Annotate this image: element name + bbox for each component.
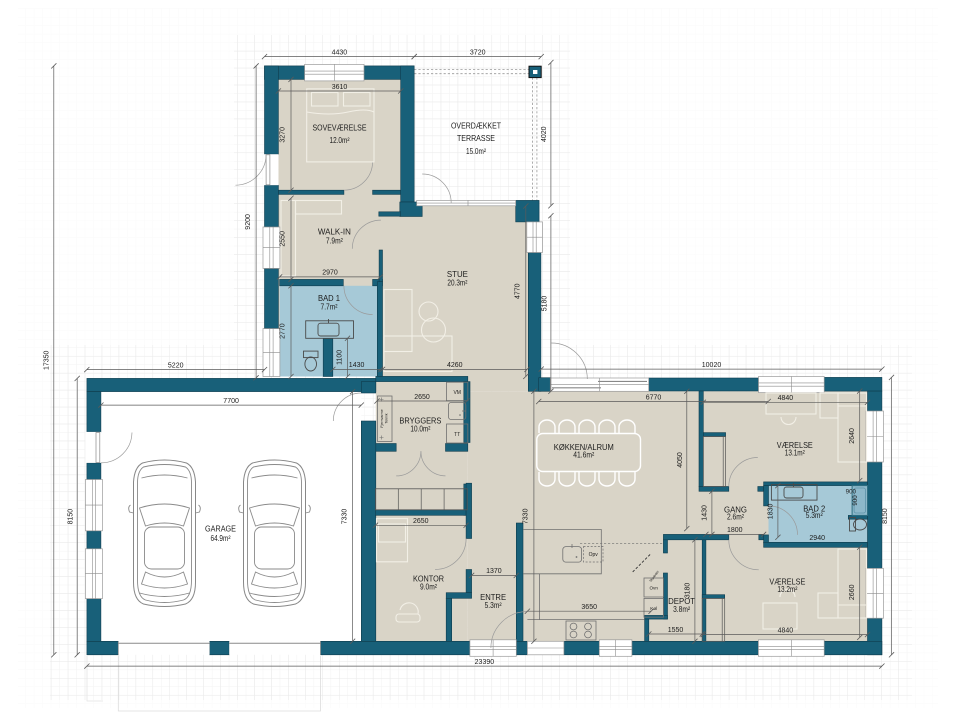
- svg-text:3270: 3270: [280, 127, 287, 143]
- svg-text:Opv: Opv: [589, 552, 599, 558]
- svg-text:4770: 4770: [515, 283, 522, 299]
- svg-text:15.0m²: 15.0m²: [466, 146, 486, 156]
- svg-text:1370: 1370: [486, 568, 502, 575]
- svg-text:2550: 2550: [280, 231, 287, 247]
- svg-text:7.7m²: 7.7m²: [321, 302, 338, 312]
- svg-text:VM: VM: [453, 390, 461, 396]
- svg-text:13.2m²: 13.2m²: [777, 584, 797, 594]
- svg-text:4050: 4050: [677, 452, 684, 468]
- svg-text:9.0m²: 9.0m²: [420, 582, 437, 592]
- svg-text:4430: 4430: [332, 49, 348, 56]
- svg-text:41.6m²: 41.6m²: [573, 450, 594, 460]
- svg-text:900: 900: [852, 495, 859, 506]
- svg-text:23390: 23390: [475, 659, 495, 666]
- svg-text:Fjernvarme: Fjernvarme: [380, 409, 384, 427]
- svg-text:8150: 8150: [882, 508, 889, 524]
- svg-text:9200: 9200: [245, 214, 252, 230]
- svg-text:12.0m²: 12.0m²: [330, 135, 350, 145]
- svg-text:Ovn: Ovn: [649, 586, 658, 591]
- svg-text:OVERDÆKKET: OVERDÆKKET: [451, 121, 501, 131]
- svg-text:1830: 1830: [768, 504, 775, 520]
- svg-text:5.3m²: 5.3m²: [806, 510, 823, 520]
- svg-text:3.8m²: 3.8m²: [673, 604, 690, 614]
- svg-text:Køl: Køl: [650, 606, 657, 611]
- svg-text:13.1m²: 13.1m²: [785, 448, 805, 458]
- svg-text:5180: 5180: [541, 296, 548, 312]
- svg-text:5.3m²: 5.3m²: [485, 600, 502, 610]
- svg-text:SOVEVÆRELSE: SOVEVÆRELSE: [313, 123, 367, 133]
- svg-text:3180: 3180: [685, 583, 692, 599]
- svg-text:7330: 7330: [523, 508, 530, 524]
- svg-text:TERRASSE: TERRASSE: [457, 133, 495, 143]
- svg-text:64.9m²: 64.9m²: [211, 533, 231, 543]
- svg-text:2650: 2650: [414, 394, 430, 401]
- svg-text:2770: 2770: [280, 323, 287, 339]
- svg-text:2660: 2660: [849, 584, 856, 600]
- svg-text:1430: 1430: [702, 505, 709, 521]
- svg-text:7330: 7330: [342, 509, 349, 525]
- svg-text:GARAGE: GARAGE: [205, 524, 236, 534]
- svg-text:4260: 4260: [447, 362, 463, 369]
- svg-text:3610: 3610: [332, 84, 348, 91]
- svg-text:17350: 17350: [44, 350, 51, 370]
- svg-text:20.3m²: 20.3m²: [447, 278, 467, 288]
- svg-text:1430: 1430: [349, 362, 365, 369]
- svg-text:2640: 2640: [849, 428, 856, 444]
- svg-text:10.0m²: 10.0m²: [410, 424, 430, 434]
- svg-text:8150: 8150: [68, 509, 75, 525]
- svg-text:1800: 1800: [727, 527, 743, 534]
- svg-text:5220: 5220: [168, 362, 184, 369]
- svg-text:900: 900: [846, 488, 857, 495]
- svg-text:Teknik: Teknik: [385, 413, 389, 423]
- svg-text:2.6m²: 2.6m²: [727, 512, 744, 522]
- svg-text:2650: 2650: [413, 518, 429, 525]
- svg-text:2970: 2970: [322, 270, 338, 277]
- svg-text:4840: 4840: [778, 627, 794, 634]
- svg-text:1100: 1100: [337, 350, 344, 365]
- svg-text:2940: 2940: [809, 535, 825, 542]
- svg-text:3650: 3650: [581, 604, 597, 611]
- svg-text:4020: 4020: [541, 126, 548, 142]
- svg-text:1550: 1550: [668, 627, 684, 634]
- svg-text:10020: 10020: [702, 362, 722, 369]
- svg-text:7.9m²: 7.9m²: [326, 236, 343, 246]
- svg-text:TT: TT: [454, 432, 460, 438]
- svg-text:7700: 7700: [223, 398, 239, 405]
- svg-text:4840: 4840: [778, 395, 794, 402]
- svg-text:6770: 6770: [646, 394, 662, 401]
- svg-text:3720: 3720: [470, 49, 486, 56]
